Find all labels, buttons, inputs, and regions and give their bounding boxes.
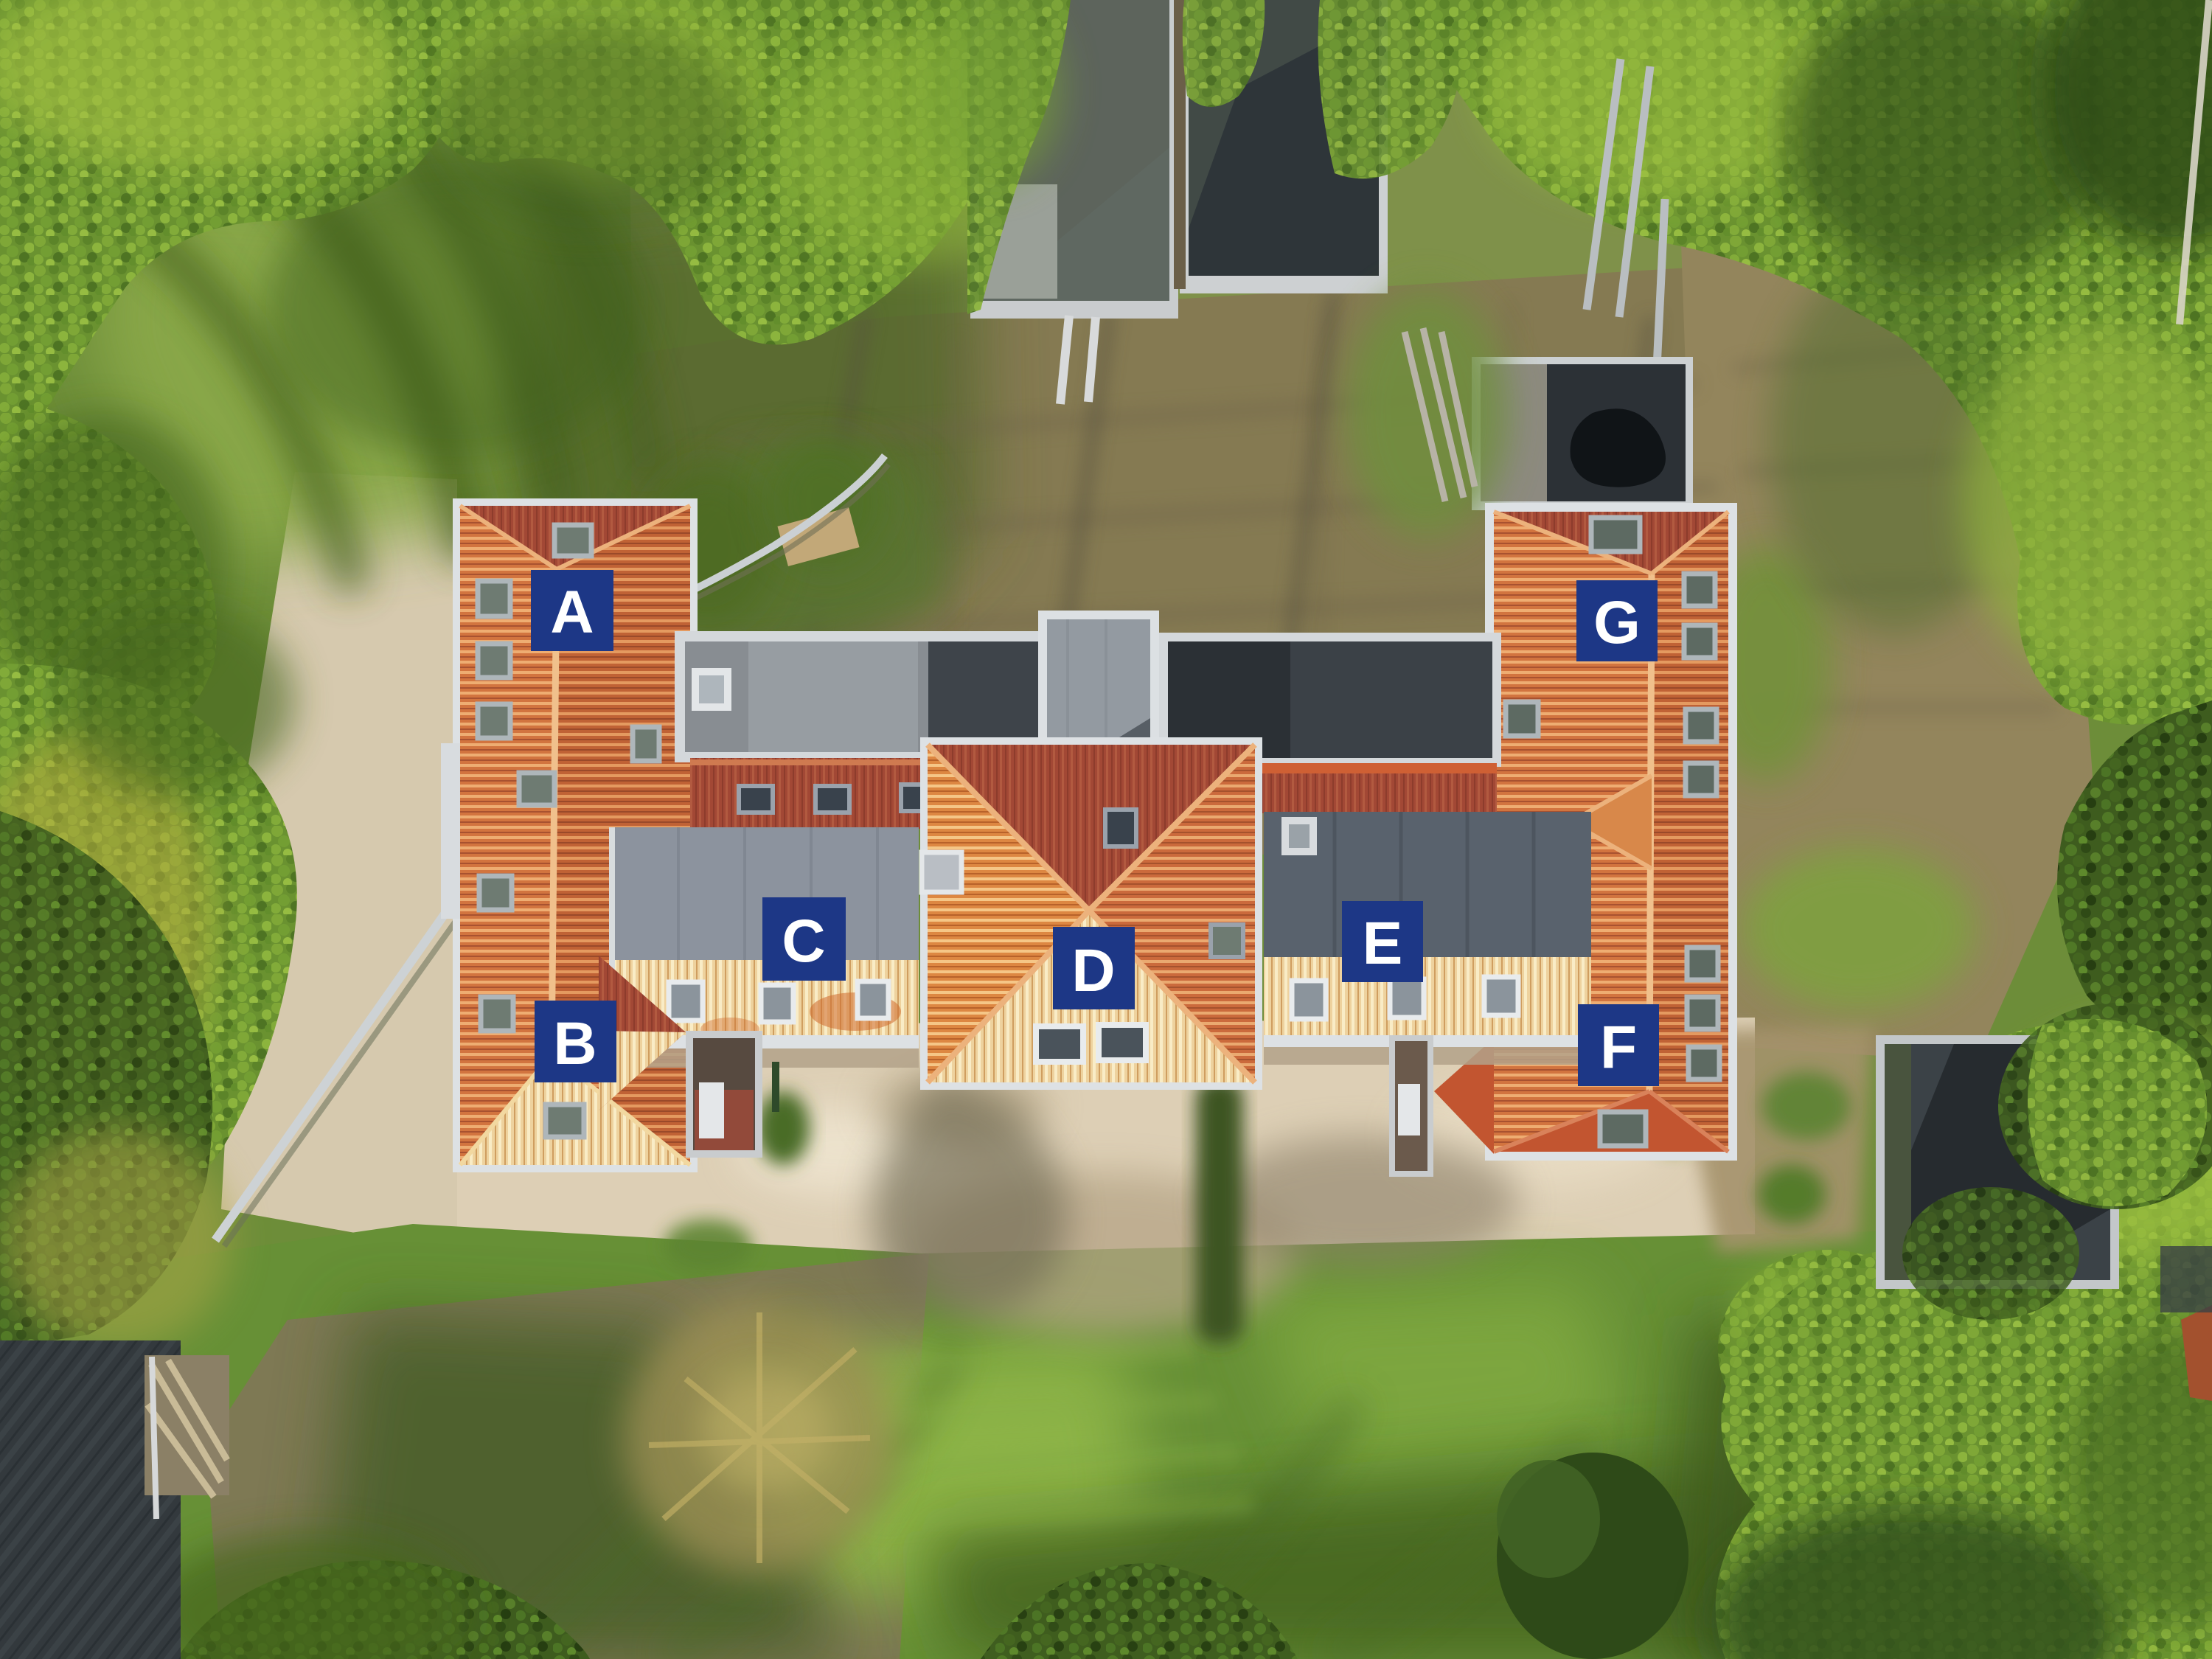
- svg-text:A: A: [550, 579, 594, 646]
- svg-text:E: E: [1363, 910, 1403, 977]
- svg-text:B: B: [553, 1010, 597, 1077]
- svg-text:F: F: [1600, 1014, 1637, 1081]
- svg-text:D: D: [1071, 937, 1115, 1004]
- svg-text:G: G: [1593, 589, 1641, 656]
- svg-text:C: C: [782, 908, 825, 975]
